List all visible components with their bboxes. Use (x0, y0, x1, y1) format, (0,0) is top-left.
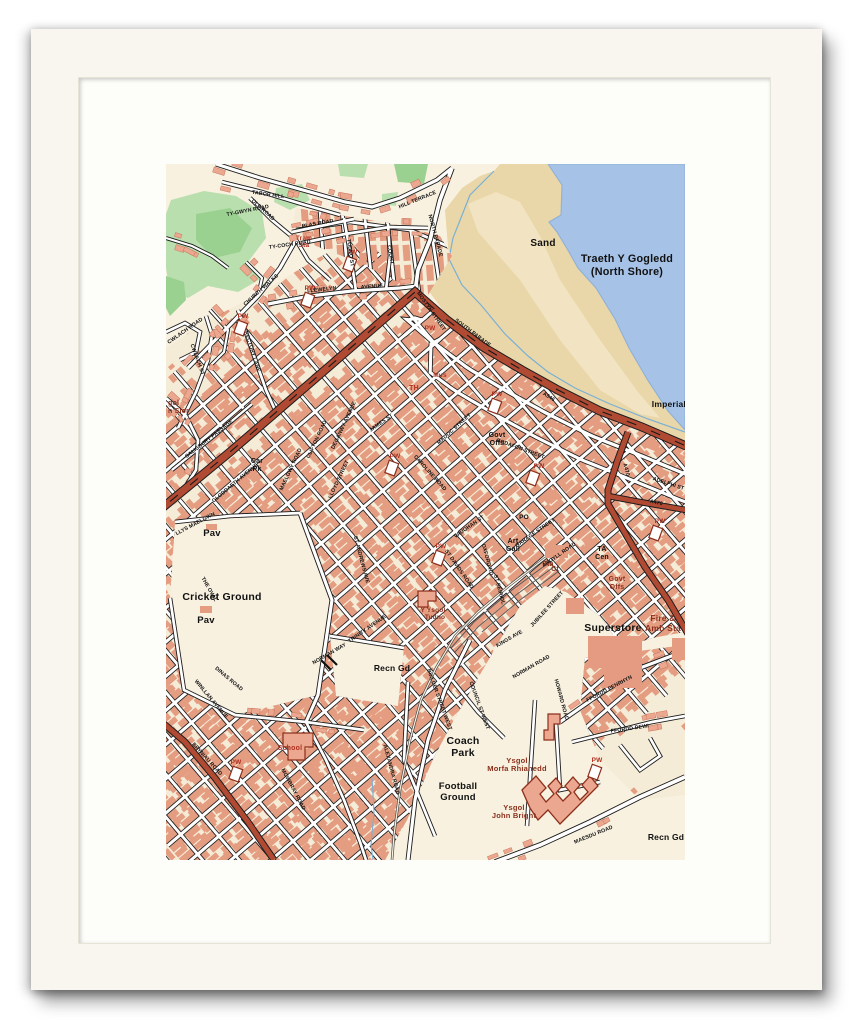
svg-text:Cen: Cen (595, 554, 609, 561)
svg-text:Fire &: Fire & (650, 613, 675, 623)
svg-text:Superstore: Superstore (584, 622, 641, 634)
svg-text:gol: gol (168, 400, 179, 407)
svg-text:Cricket Ground: Cricket Ground (182, 591, 261, 603)
svg-text:Ground: Ground (440, 792, 476, 803)
svg-text:Morfa Rhianedd: Morfa Rhianedd (487, 764, 547, 773)
svg-text:TA: TA (597, 546, 606, 553)
svg-text:Recn Gd: Recn Gd (374, 663, 410, 673)
svg-text:Y Ysgol: Y Ysgol (420, 607, 445, 614)
svg-text:(North Shore): (North Shore) (591, 266, 663, 278)
svg-text:Coach: Coach (446, 735, 479, 747)
svg-text:Imperial: Imperial (652, 399, 685, 409)
svg-text:PW: PW (231, 759, 243, 766)
svg-text:Mus: Mus (433, 372, 447, 379)
svg-text:School: School (278, 745, 303, 752)
svg-text:PW: PW (534, 463, 546, 470)
svg-text:PW: PW (592, 757, 604, 764)
svg-text:Sand: Sand (530, 238, 555, 249)
svg-text:Park: Park (451, 747, 475, 759)
svg-text:Amb Sta: Amb Sta (645, 623, 681, 633)
svg-text:Tudno: Tudno (425, 614, 445, 621)
svg-text:PW: PW (655, 518, 667, 525)
svg-text:PW: PW (238, 313, 250, 320)
svg-text:Offs: Offs (610, 584, 625, 591)
svg-text:PO: PO (519, 514, 529, 521)
svg-text:Traeth Y Gogledd: Traeth Y Gogledd (581, 253, 673, 265)
svg-text:n Sior: n Sior (168, 408, 189, 415)
svg-text:TH: TH (409, 385, 419, 392)
svg-text:PW: PW (425, 325, 437, 332)
svg-text:PW: PW (492, 391, 504, 398)
svg-text:Pav: Pav (203, 528, 221, 539)
svg-text:Pav: Pav (197, 615, 215, 626)
svg-text:PW: PW (436, 543, 448, 550)
svg-text:John Bright: John Bright (492, 811, 537, 820)
svg-text:Football: Football (439, 781, 478, 792)
svg-text:Govt: Govt (609, 576, 626, 583)
svg-text:PW: PW (390, 453, 402, 460)
svg-text:Recn Gd: Recn Gd (648, 832, 684, 842)
